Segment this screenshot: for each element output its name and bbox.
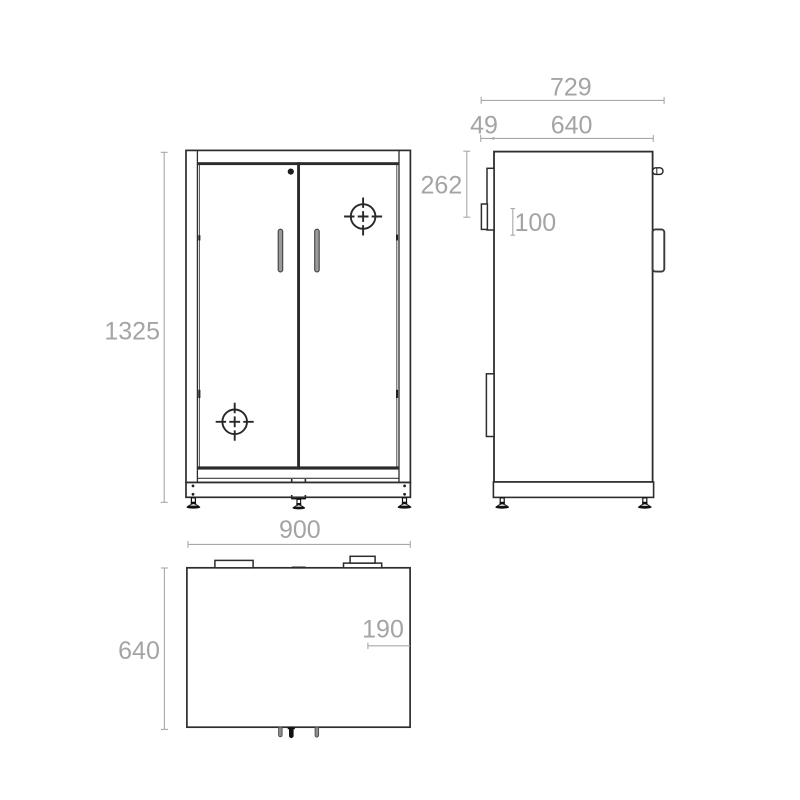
- svg-text:262: 262: [421, 172, 463, 200]
- svg-text:49: 49: [470, 111, 498, 139]
- svg-text:1325: 1325: [104, 318, 160, 346]
- svg-text:190: 190: [362, 615, 404, 643]
- svg-text:640: 640: [551, 111, 593, 139]
- svg-text:640: 640: [118, 637, 160, 665]
- svg-text:900: 900: [279, 516, 321, 544]
- svg-text:100: 100: [514, 209, 556, 237]
- svg-text:729: 729: [550, 73, 592, 101]
